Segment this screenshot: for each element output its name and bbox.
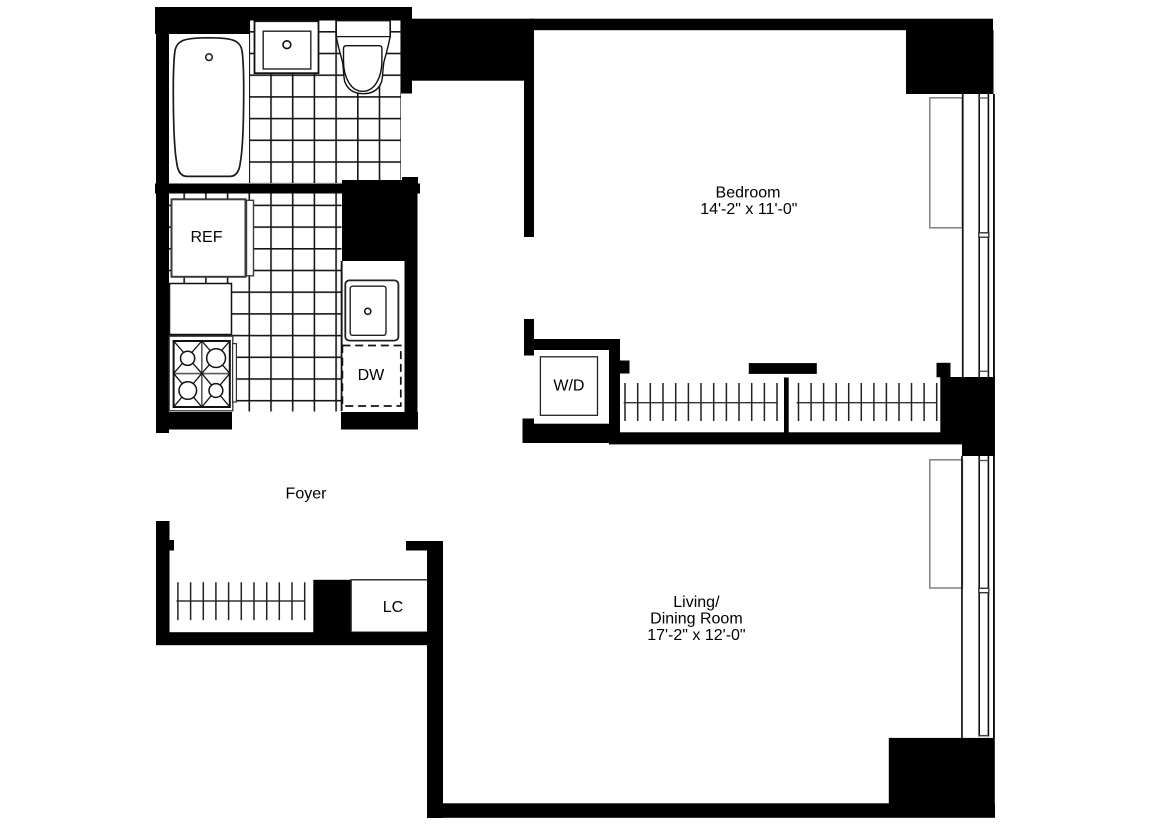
svg-text:14'-2" x 11'-0": 14'-2" x 11'-0" bbox=[700, 201, 797, 218]
svg-text:DW: DW bbox=[358, 367, 386, 384]
svg-text:REF: REF bbox=[191, 229, 223, 246]
svg-text:Bedroom: Bedroom bbox=[716, 184, 781, 201]
svg-text:Dining Room: Dining Room bbox=[650, 610, 742, 627]
svg-text:LC: LC bbox=[383, 599, 403, 616]
svg-text:17'-2" x 12'-0": 17'-2" x 12'-0" bbox=[647, 627, 745, 644]
svg-text:W/D: W/D bbox=[553, 377, 584, 394]
svg-text:Living/: Living/ bbox=[673, 594, 720, 611]
svg-text:Foyer: Foyer bbox=[286, 486, 328, 503]
